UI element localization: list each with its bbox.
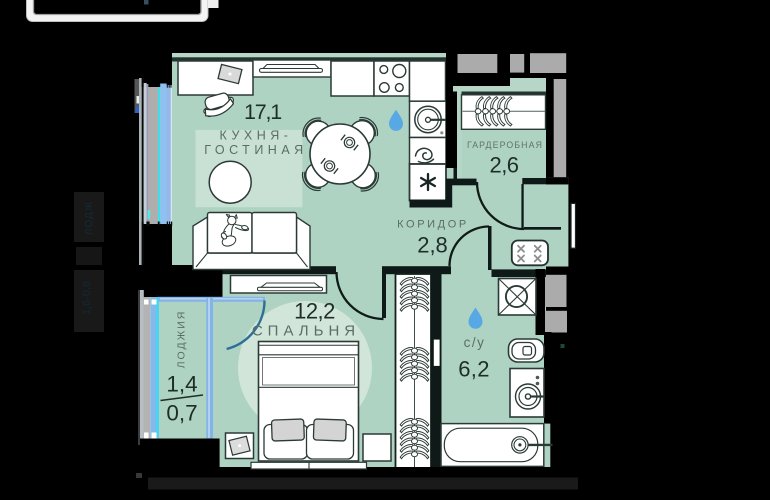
svg-text:0,7: 0,7 bbox=[166, 401, 197, 426]
svg-text:1,4: 1,4 bbox=[166, 371, 197, 396]
svg-text:СПАЛЬНЯ: СПАЛЬНЯ bbox=[252, 323, 360, 340]
svg-text:2,6: 2,6 bbox=[489, 153, 518, 178]
svg-text:1,6-0,8: 1,6-0,8 bbox=[81, 281, 93, 315]
svg-text:КОРИДОР: КОРИДОР bbox=[397, 219, 469, 231]
svg-text:6,2: 6,2 bbox=[458, 357, 489, 382]
svg-text:КУХНЯ-: КУХНЯ- bbox=[220, 129, 293, 143]
svg-text:ГАРДЕРОБНАЯ: ГАРДЕРОБНАЯ bbox=[467, 140, 543, 150]
svg-text:ЛОДЖИЯ: ЛОДЖИЯ bbox=[176, 310, 188, 369]
svg-text:17,1: 17,1 bbox=[244, 100, 281, 124]
svg-text:2,8: 2,8 bbox=[417, 232, 448, 257]
svg-text:ЛОДЖ: ЛОДЖ bbox=[84, 201, 95, 235]
svg-text:с/у: с/у bbox=[464, 335, 486, 350]
svg-text:ГОСТИНАЯ: ГОСТИНАЯ bbox=[204, 143, 307, 157]
svg-text:12,2: 12,2 bbox=[294, 299, 335, 324]
